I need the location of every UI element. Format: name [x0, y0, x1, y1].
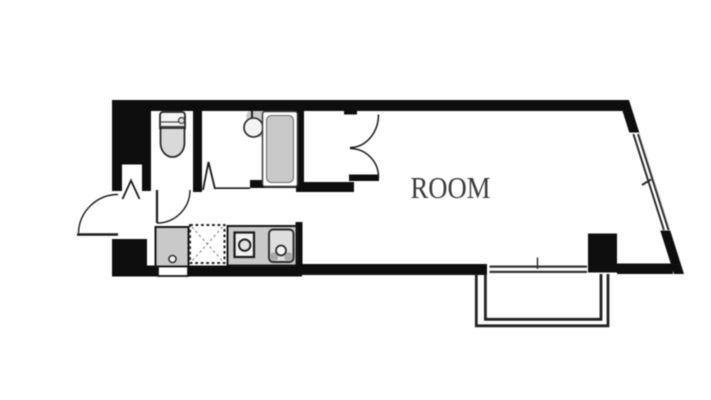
svg-text:ROOM: ROOM [411, 170, 491, 205]
